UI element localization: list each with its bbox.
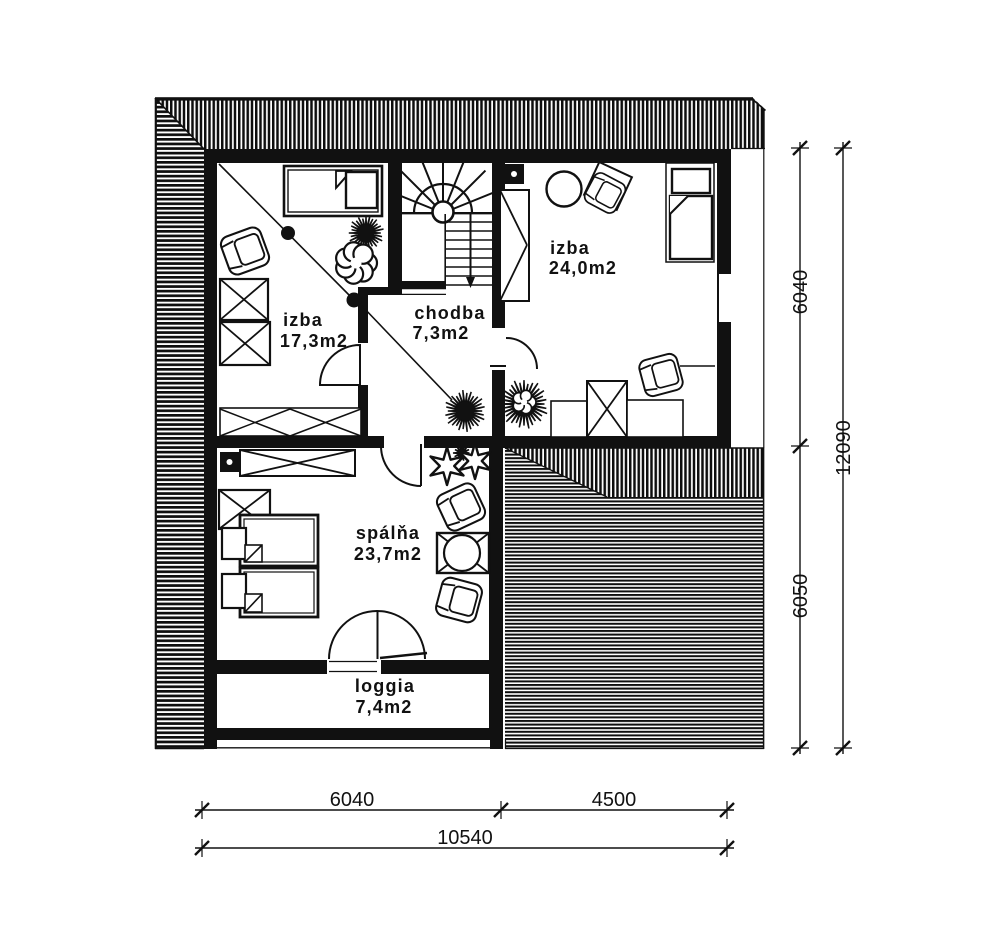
svg-text:7,4m2: 7,4m2 (355, 697, 412, 717)
svg-text:chodba: chodba (414, 303, 485, 323)
svg-text:izba: izba (550, 238, 590, 258)
svg-text:7,3m2: 7,3m2 (412, 323, 469, 343)
svg-text:spálňa: spálňa (356, 523, 420, 543)
svg-text:12090: 12090 (833, 420, 855, 476)
svg-text:24,0m2: 24,0m2 (549, 258, 617, 278)
svg-text:17,3m2: 17,3m2 (280, 331, 348, 351)
svg-text:23,7m2: 23,7m2 (354, 544, 422, 564)
svg-text:6040: 6040 (790, 270, 812, 315)
svg-text:6040: 6040 (330, 789, 375, 811)
svg-text:4500: 4500 (592, 789, 637, 811)
svg-text:izba: izba (283, 310, 323, 330)
svg-text:10540: 10540 (437, 827, 493, 849)
svg-text:6050: 6050 (790, 574, 812, 619)
svg-text:loggia: loggia (355, 676, 415, 696)
